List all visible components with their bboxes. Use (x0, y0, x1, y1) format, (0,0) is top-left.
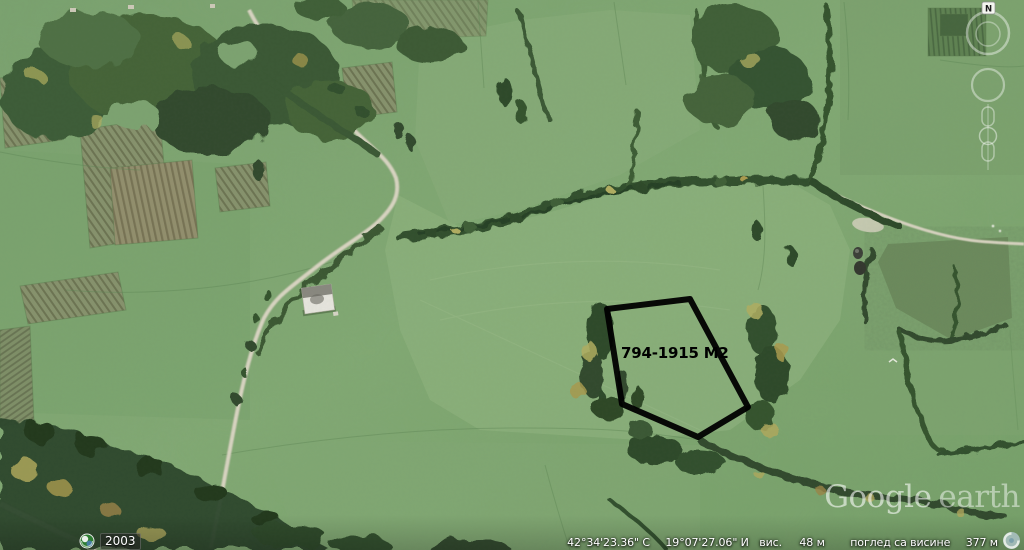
navigation-controls: N (956, 0, 1024, 180)
google-earth-watermark: Googleearth (824, 479, 1020, 515)
watermark-brand: Google (824, 479, 931, 515)
pan-ring[interactable] (972, 69, 1004, 101)
elevation-value: 48 м (799, 536, 824, 549)
eye-altitude-label: поглед са висине (850, 536, 950, 549)
zoom-slider[interactable] (980, 104, 997, 170)
north-badge[interactable]: N (982, 2, 995, 15)
look-ring[interactable] (967, 12, 1009, 54)
satellite-map-canvas[interactable] (0, 0, 1024, 550)
parcel-area-label: 794-1915 M2 (621, 344, 729, 362)
latitude-readout: 42°34'23.36" С (567, 536, 650, 549)
globe-swirl-icon (1001, 531, 1022, 550)
elevation-label: вис. (759, 536, 782, 549)
eye-altitude-value: 377 м (966, 536, 998, 549)
imagery-date-badge[interactable]: 2003 (79, 533, 141, 549)
longitude-readout: 19°07'27.06" И (665, 536, 748, 549)
clock-globe-icon (79, 533, 95, 549)
imagery-year-label: 2003 (100, 533, 141, 550)
photo-grain (0, 0, 1024, 550)
watermark-product: earth (938, 479, 1020, 515)
status-bar: 42°34'23.36" С 19°07'27.06" И вис. 48 м … (567, 536, 998, 549)
north-icon: N (985, 5, 992, 15)
google-earth-window: 794-1915 M2 N 2003 42°34'23.36" С 19 (0, 0, 1024, 550)
